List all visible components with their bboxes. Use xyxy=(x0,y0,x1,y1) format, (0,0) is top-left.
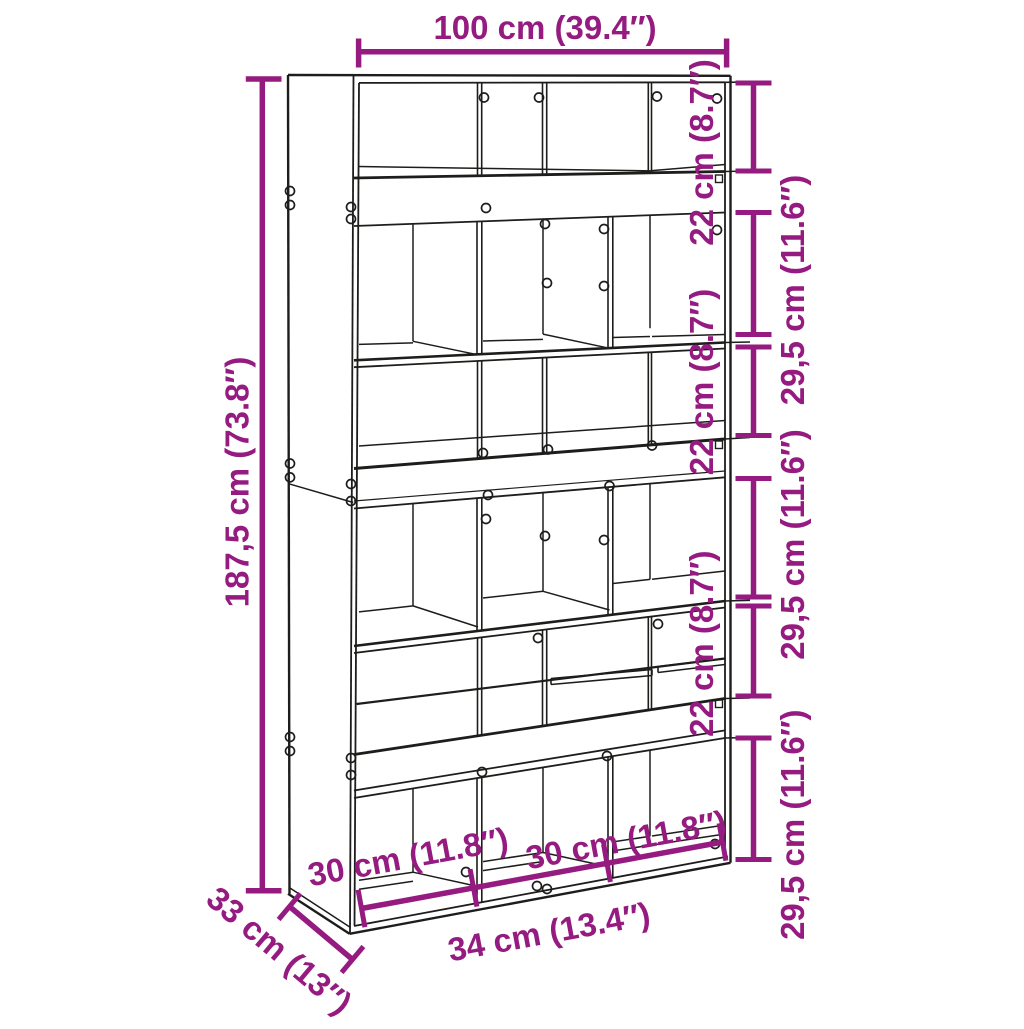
svg-text:187,5 cm (73.8″): 187,5 cm (73.8″) xyxy=(219,357,256,608)
svg-text:22 cm (8.7″): 22 cm (8.7″) xyxy=(683,59,720,245)
svg-text:29,5 cm (11.6″): 29,5 cm (11.6″) xyxy=(774,175,811,405)
svg-text:29,5 cm (11.6″): 29,5 cm (11.6″) xyxy=(774,429,811,659)
svg-text:22 cm (8.7″): 22 cm (8.7″) xyxy=(683,550,720,736)
svg-text:100 cm (39.4″): 100 cm (39.4″) xyxy=(433,9,656,46)
svg-text:29,5 cm (11.6″): 29,5 cm (11.6″) xyxy=(774,709,811,939)
svg-text:22 cm (8.7″): 22 cm (8.7″) xyxy=(683,289,720,475)
